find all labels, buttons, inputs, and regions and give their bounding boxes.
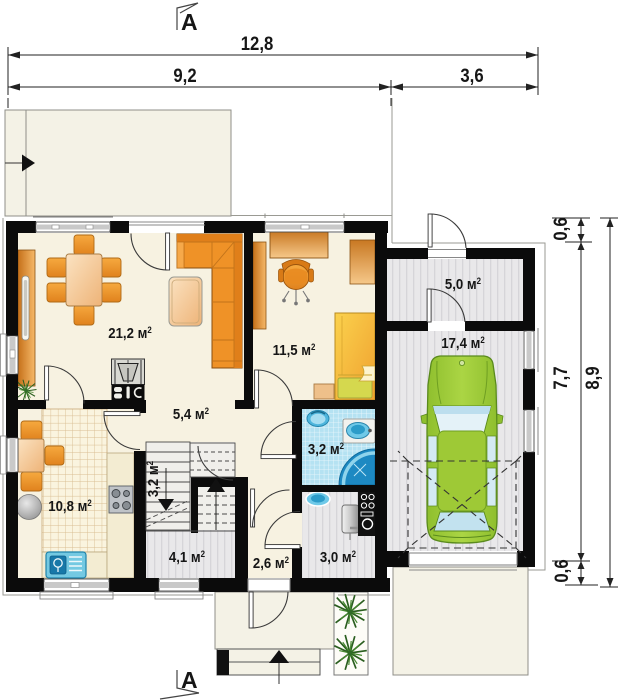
svg-text:5,4 м2: 5,4 м2 [173,405,209,422]
svg-text:A: A [181,9,198,35]
svg-text:4,1 м2: 4,1 м2 [169,548,205,565]
svg-text:3,6: 3,6 [460,65,483,86]
svg-text:2,6 м2: 2,6 м2 [253,554,289,571]
svg-text:0,6: 0,6 [550,217,571,240]
svg-text:21,2 м2: 21,2 м2 [108,324,152,341]
svg-text:10,8 м2: 10,8 м2 [48,497,92,514]
svg-text:7,7: 7,7 [550,366,571,389]
svg-text:12,8: 12,8 [241,33,274,54]
svg-text:3,2 м2: 3,2 м2 [308,440,344,457]
svg-text:0,6: 0,6 [551,559,572,582]
svg-text:5,0 м2: 5,0 м2 [445,275,481,292]
svg-text:8,9: 8,9 [582,366,603,389]
svg-text:3,0 м2: 3,0 м2 [320,548,356,565]
svg-text:3,2 м2: 3,2 м2 [144,461,161,497]
svg-text:A: A [181,667,198,693]
svg-text:11,5 м2: 11,5 м2 [273,341,316,358]
svg-text:9,2: 9,2 [173,65,196,86]
svg-text:17,4 м2: 17,4 м2 [441,334,485,351]
